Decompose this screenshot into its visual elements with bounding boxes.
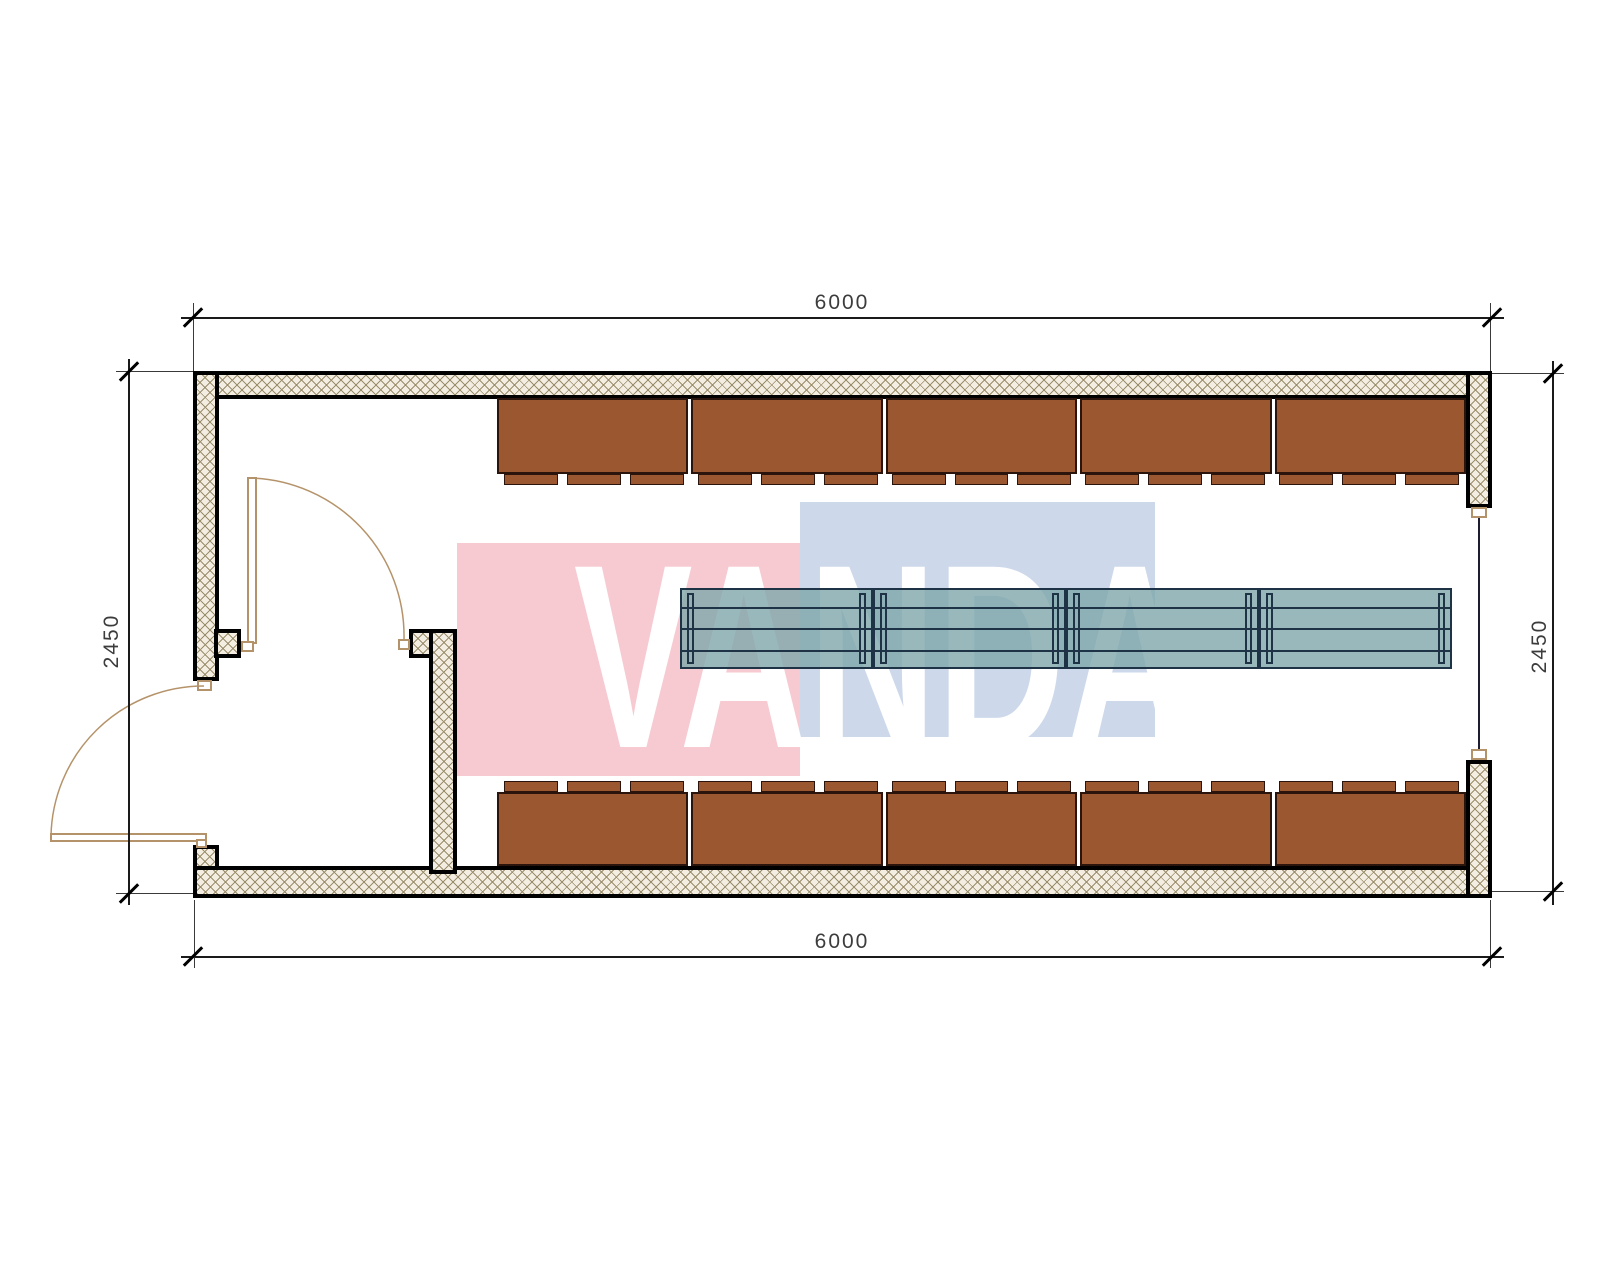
cabinet-foot <box>761 781 815 792</box>
wall-top <box>193 371 1492 399</box>
cabinet-feet-bottom <box>497 781 1466 792</box>
dimension-value-right: 2450 <box>1528 566 1552 726</box>
cabinet-unit <box>691 792 882 866</box>
cabinet-unit <box>497 792 688 866</box>
cabinet-foot-group <box>885 474 1079 485</box>
table-unit <box>1066 588 1259 669</box>
extension-line <box>194 900 195 968</box>
table-plank-line <box>682 650 871 652</box>
table-unit <box>680 588 873 669</box>
cabinet-foot <box>567 781 621 792</box>
interior-door-hinge-jamb <box>241 641 254 652</box>
table-plank-line <box>682 607 871 609</box>
table-plank-line <box>875 628 1064 630</box>
cabinet-foot-group <box>1272 474 1466 485</box>
cabinet-foot <box>1405 781 1459 792</box>
cabinet-unit <box>691 398 882 474</box>
extension-line <box>1490 303 1491 371</box>
table-plank-line <box>875 607 1064 609</box>
cabinet-foot <box>1017 781 1071 792</box>
window-jamb-top <box>1471 507 1487 518</box>
dimension-value-top: 6000 <box>762 291 922 315</box>
table-plank-line <box>875 650 1064 652</box>
table-plank-line <box>1261 650 1450 652</box>
table-plank-line <box>1068 628 1257 630</box>
cabinet-unit <box>886 398 1077 474</box>
cabinet-unit <box>497 398 688 474</box>
cabinet-unit <box>1275 398 1466 474</box>
wall-right-upper <box>1466 371 1492 508</box>
table-plank-line <box>1068 607 1257 609</box>
cabinet-foot <box>824 474 878 485</box>
dimension-line-left <box>128 359 130 905</box>
cabinet-foot <box>1211 474 1265 485</box>
interior-door-leaf <box>247 477 257 644</box>
interior-door-arc <box>252 478 404 639</box>
cabinet-foot <box>1211 781 1265 792</box>
table-leg <box>1245 593 1252 664</box>
cabinet-foot <box>892 474 946 485</box>
cabinet-foot <box>1405 474 1459 485</box>
table-leg <box>880 593 887 664</box>
cabinet-foot <box>504 474 558 485</box>
cabinet-foot-group <box>497 474 691 485</box>
cabinet-foot-group <box>497 781 691 792</box>
table-leg <box>687 593 694 664</box>
cabinet-foot <box>1279 474 1333 485</box>
table-unit <box>1259 588 1452 669</box>
table-leg <box>1266 593 1273 664</box>
dimension-value-left: 2450 <box>100 561 124 721</box>
table-plank-line <box>682 628 871 630</box>
cabinet-foot-group <box>1078 781 1272 792</box>
cabinet-row-top <box>497 398 1466 474</box>
cabinet-foot <box>1085 781 1139 792</box>
table-row <box>680 588 1452 669</box>
table-plank-line <box>1261 628 1450 630</box>
cabinet-foot <box>698 474 752 485</box>
cabinet-foot <box>1085 474 1139 485</box>
table-leg <box>1438 593 1445 664</box>
cabinet-foot <box>630 474 684 485</box>
table-leg <box>859 593 866 664</box>
cabinet-foot-group <box>691 781 885 792</box>
dimension-line-bottom <box>181 956 1504 958</box>
cabinet-unit <box>886 792 1077 866</box>
table-leg <box>1073 593 1080 664</box>
cabinet-foot <box>955 781 1009 792</box>
cabinet-foot <box>1342 781 1396 792</box>
exterior-door-hinge-jamb <box>196 839 207 848</box>
cabinet-foot <box>824 781 878 792</box>
interior-door-strike-jamb <box>398 639 410 650</box>
cabinet-unit <box>1275 792 1466 866</box>
cabinet-unit <box>1080 398 1271 474</box>
cabinet-feet-top <box>497 474 1466 485</box>
partition-wall <box>429 629 457 874</box>
cabinet-foot <box>1342 474 1396 485</box>
cabinet-foot <box>630 781 684 792</box>
cabinet-foot <box>1148 781 1202 792</box>
cabinet-foot <box>567 474 621 485</box>
cabinet-foot <box>1279 781 1333 792</box>
cabinet-foot <box>504 781 558 792</box>
cabinet-foot <box>1017 474 1071 485</box>
cabinet-foot-group <box>1272 781 1466 792</box>
cabinet-foot <box>1148 474 1202 485</box>
floor-plan-canvas: VANDA 6000 6000 2450 <box>0 0 1600 1280</box>
cabinet-foot <box>698 781 752 792</box>
window-jamb-bottom <box>1471 749 1487 760</box>
exterior-door-jamb <box>197 680 212 691</box>
cabinet-foot-group <box>885 781 1079 792</box>
table-plank-line <box>1068 650 1257 652</box>
table-leg <box>1052 593 1059 664</box>
cabinet-foot-group <box>691 474 885 485</box>
table-plank-line <box>1261 607 1450 609</box>
dimension-line-top <box>181 317 1504 319</box>
dimension-line-right <box>1552 361 1554 905</box>
table-unit <box>873 588 1066 669</box>
cabinet-foot <box>892 781 946 792</box>
cabinet-foot <box>955 474 1009 485</box>
wall-interior-door-stub <box>214 629 241 658</box>
cabinet-foot-group <box>1078 474 1272 485</box>
cabinet-row-bottom <box>497 792 1466 866</box>
wall-bottom <box>193 866 1492 898</box>
wall-right-lower <box>1466 760 1492 898</box>
cabinet-unit <box>1080 792 1271 866</box>
dimension-value-bottom: 6000 <box>762 930 922 954</box>
cabinet-foot <box>761 474 815 485</box>
window-line <box>1478 517 1480 750</box>
